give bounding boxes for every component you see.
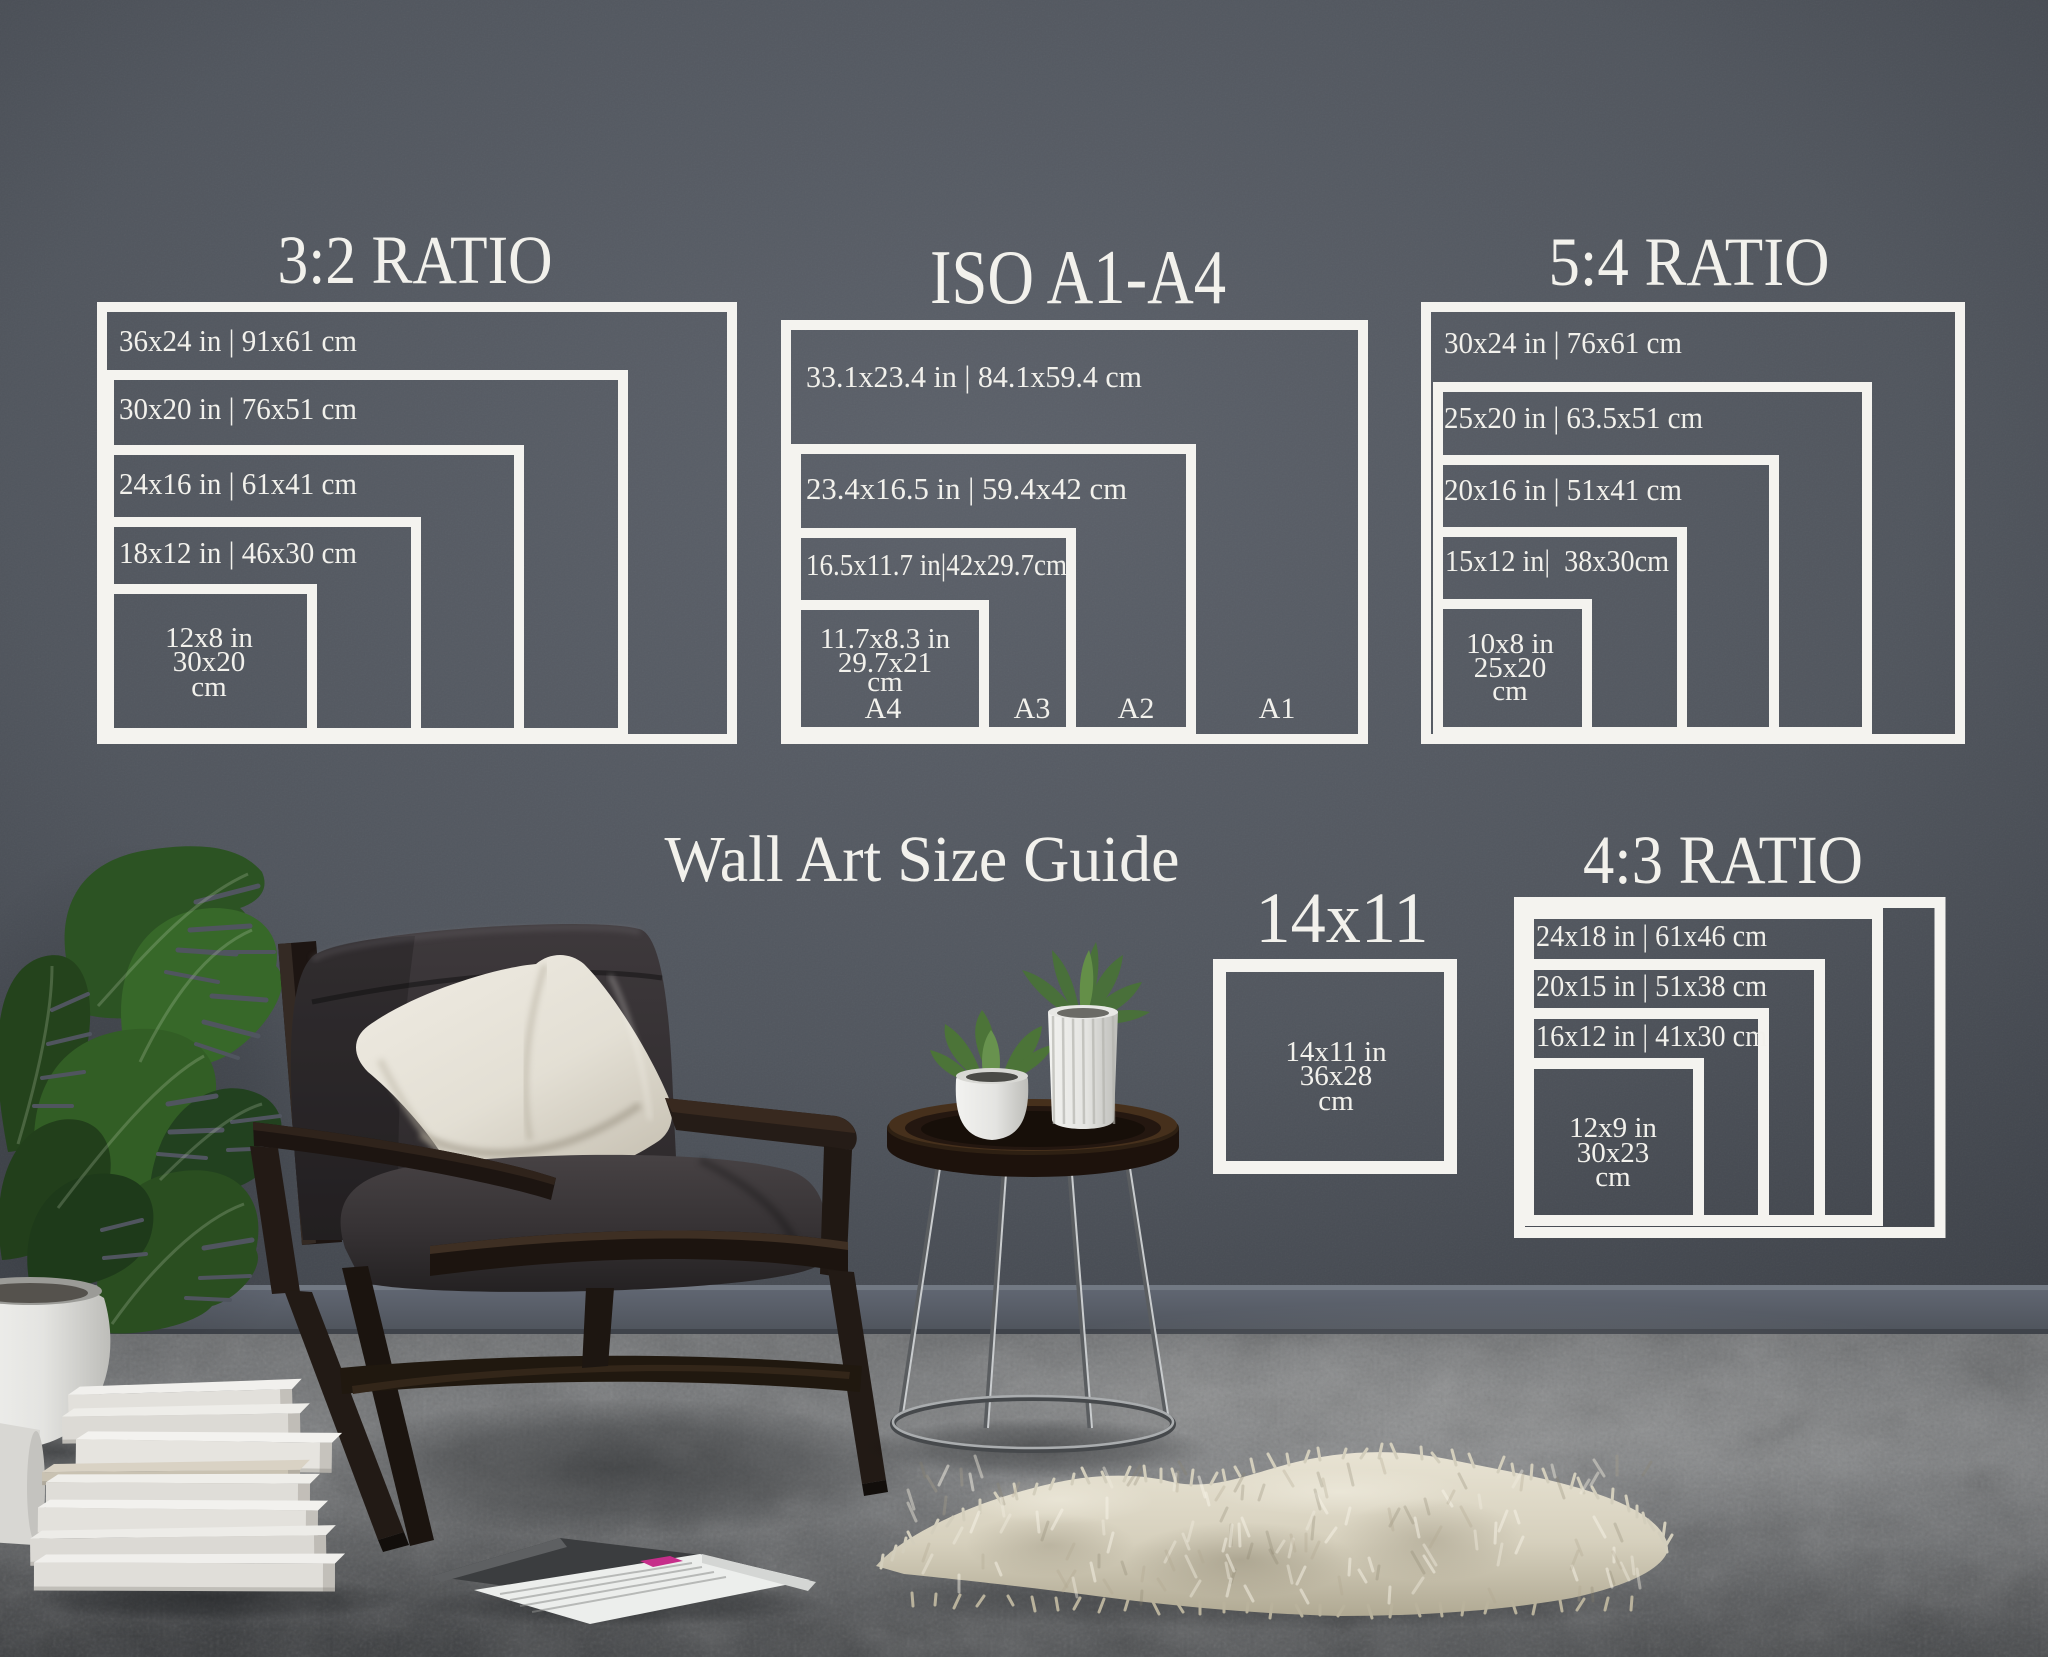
svg-text:24x16 in | 61x41 cm: 24x16 in | 61x41 cm [119,466,357,501]
svg-text:33.1x23.4 in | 84.1x59.4 cm: 33.1x23.4 in | 84.1x59.4 cm [806,359,1142,394]
svg-text:16x12 in | 41x30 cm: 16x12 in | 41x30 cm [1536,1018,1767,1053]
svg-text:25x20 in | 63.5x51 cm: 25x20 in | 63.5x51 cm [1444,400,1703,435]
svg-text:24x18 in | 61x46 cm: 24x18 in | 61x46 cm [1536,918,1767,953]
svg-text:15x12 in| 38x30cm: 15x12 in| 38x30cm [1445,543,1669,578]
svg-text:36x24 in | 91x61 cm: 36x24 in | 91x61 cm [119,323,357,358]
svg-text:Wall Art Size Guide: Wall Art Size Guide [665,823,1180,896]
svg-text:cm: cm [1318,1085,1354,1117]
svg-text:18x12 in | 46x30 cm: 18x12 in | 46x30 cm [119,535,357,570]
svg-text:30x24 in | 76x61 cm: 30x24 in | 76x61 cm [1444,325,1682,360]
svg-text:14x11: 14x11 [1256,878,1429,958]
svg-text:20x15 in | 51x38 cm: 20x15 in | 51x38 cm [1536,968,1767,1003]
svg-text:3:2 RATIO: 3:2 RATIO [278,222,553,298]
svg-text:ISO A1-A4: ISO A1-A4 [930,234,1226,320]
svg-text:A2: A2 [1118,692,1155,725]
svg-text:A3: A3 [1014,692,1051,725]
svg-text:30x20 in | 76x51 cm: 30x20 in | 76x51 cm [119,391,357,426]
svg-text:16.5x11.7 in|42x29.7cm: 16.5x11.7 in|42x29.7cm [806,547,1067,582]
svg-text:4:3 RATIO: 4:3 RATIO [1583,822,1863,898]
svg-text:A1: A1 [1259,692,1296,725]
svg-text:cm: cm [191,671,227,703]
svg-text:cm: cm [1492,675,1528,707]
svg-text:A4: A4 [865,692,902,725]
svg-text:cm: cm [1595,1161,1631,1193]
svg-text:23.4x16.5 in | 59.4x42 cm: 23.4x16.5 in | 59.4x42 cm [806,471,1127,506]
svg-text:20x16 in | 51x41 cm: 20x16 in | 51x41 cm [1444,472,1682,507]
svg-text:5:4 RATIO: 5:4 RATIO [1549,224,1830,300]
